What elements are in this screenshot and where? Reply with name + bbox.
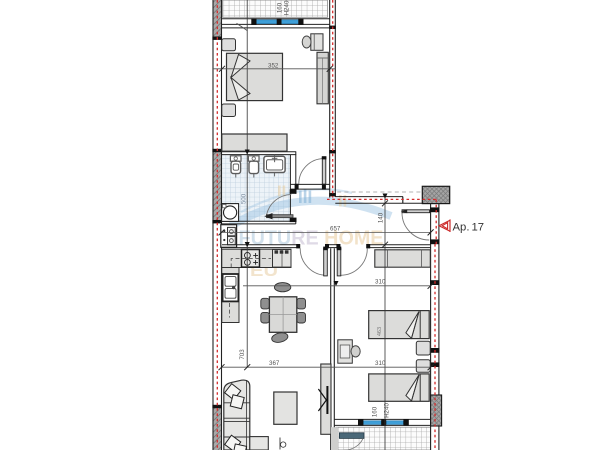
svg-text:160: 160: [371, 406, 378, 417]
svg-text:FUTURE HOME: FUTURE HOME: [239, 226, 384, 249]
svg-text:140: 140: [378, 212, 385, 223]
svg-text:Ap.17: Ap.17: [453, 222, 485, 234]
svg-text:703: 703: [239, 349, 246, 360]
svg-text:H240: H240: [284, 0, 291, 15]
svg-text:310: 310: [375, 278, 386, 285]
svg-text:310: 310: [375, 360, 386, 367]
svg-text:H240: H240: [383, 403, 390, 418]
svg-text:463: 463: [377, 327, 383, 336]
svg-text:352: 352: [268, 62, 279, 69]
svg-text:500: 500: [241, 193, 248, 204]
svg-text:160: 160: [277, 2, 284, 13]
svg-text:657: 657: [330, 226, 341, 233]
svg-text:367: 367: [269, 360, 280, 367]
